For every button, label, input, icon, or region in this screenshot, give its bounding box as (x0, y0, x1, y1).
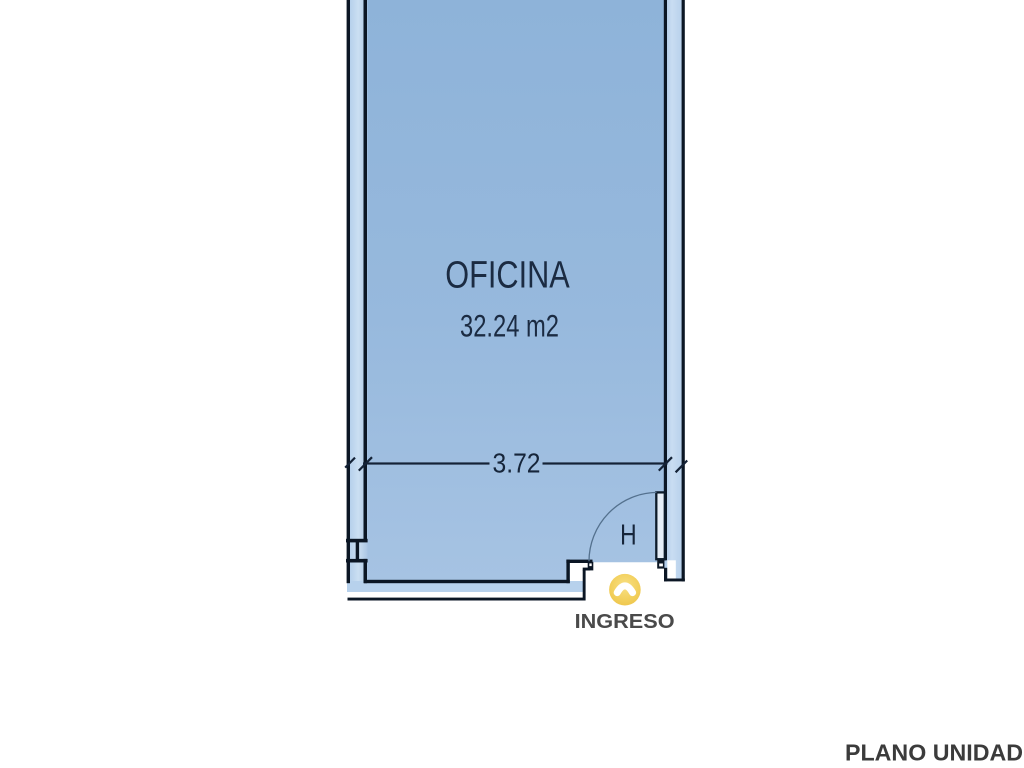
svg-text:32.24 m2: 32.24 m2 (460, 308, 559, 344)
svg-text:PLANO UNIDAD: PLANO UNIDAD (845, 740, 1023, 766)
svg-text:INGRESO: INGRESO (575, 611, 675, 633)
svg-text:H: H (620, 520, 637, 552)
svg-text:OFICINA: OFICINA (445, 255, 570, 297)
svg-text:3.72: 3.72 (493, 448, 541, 479)
